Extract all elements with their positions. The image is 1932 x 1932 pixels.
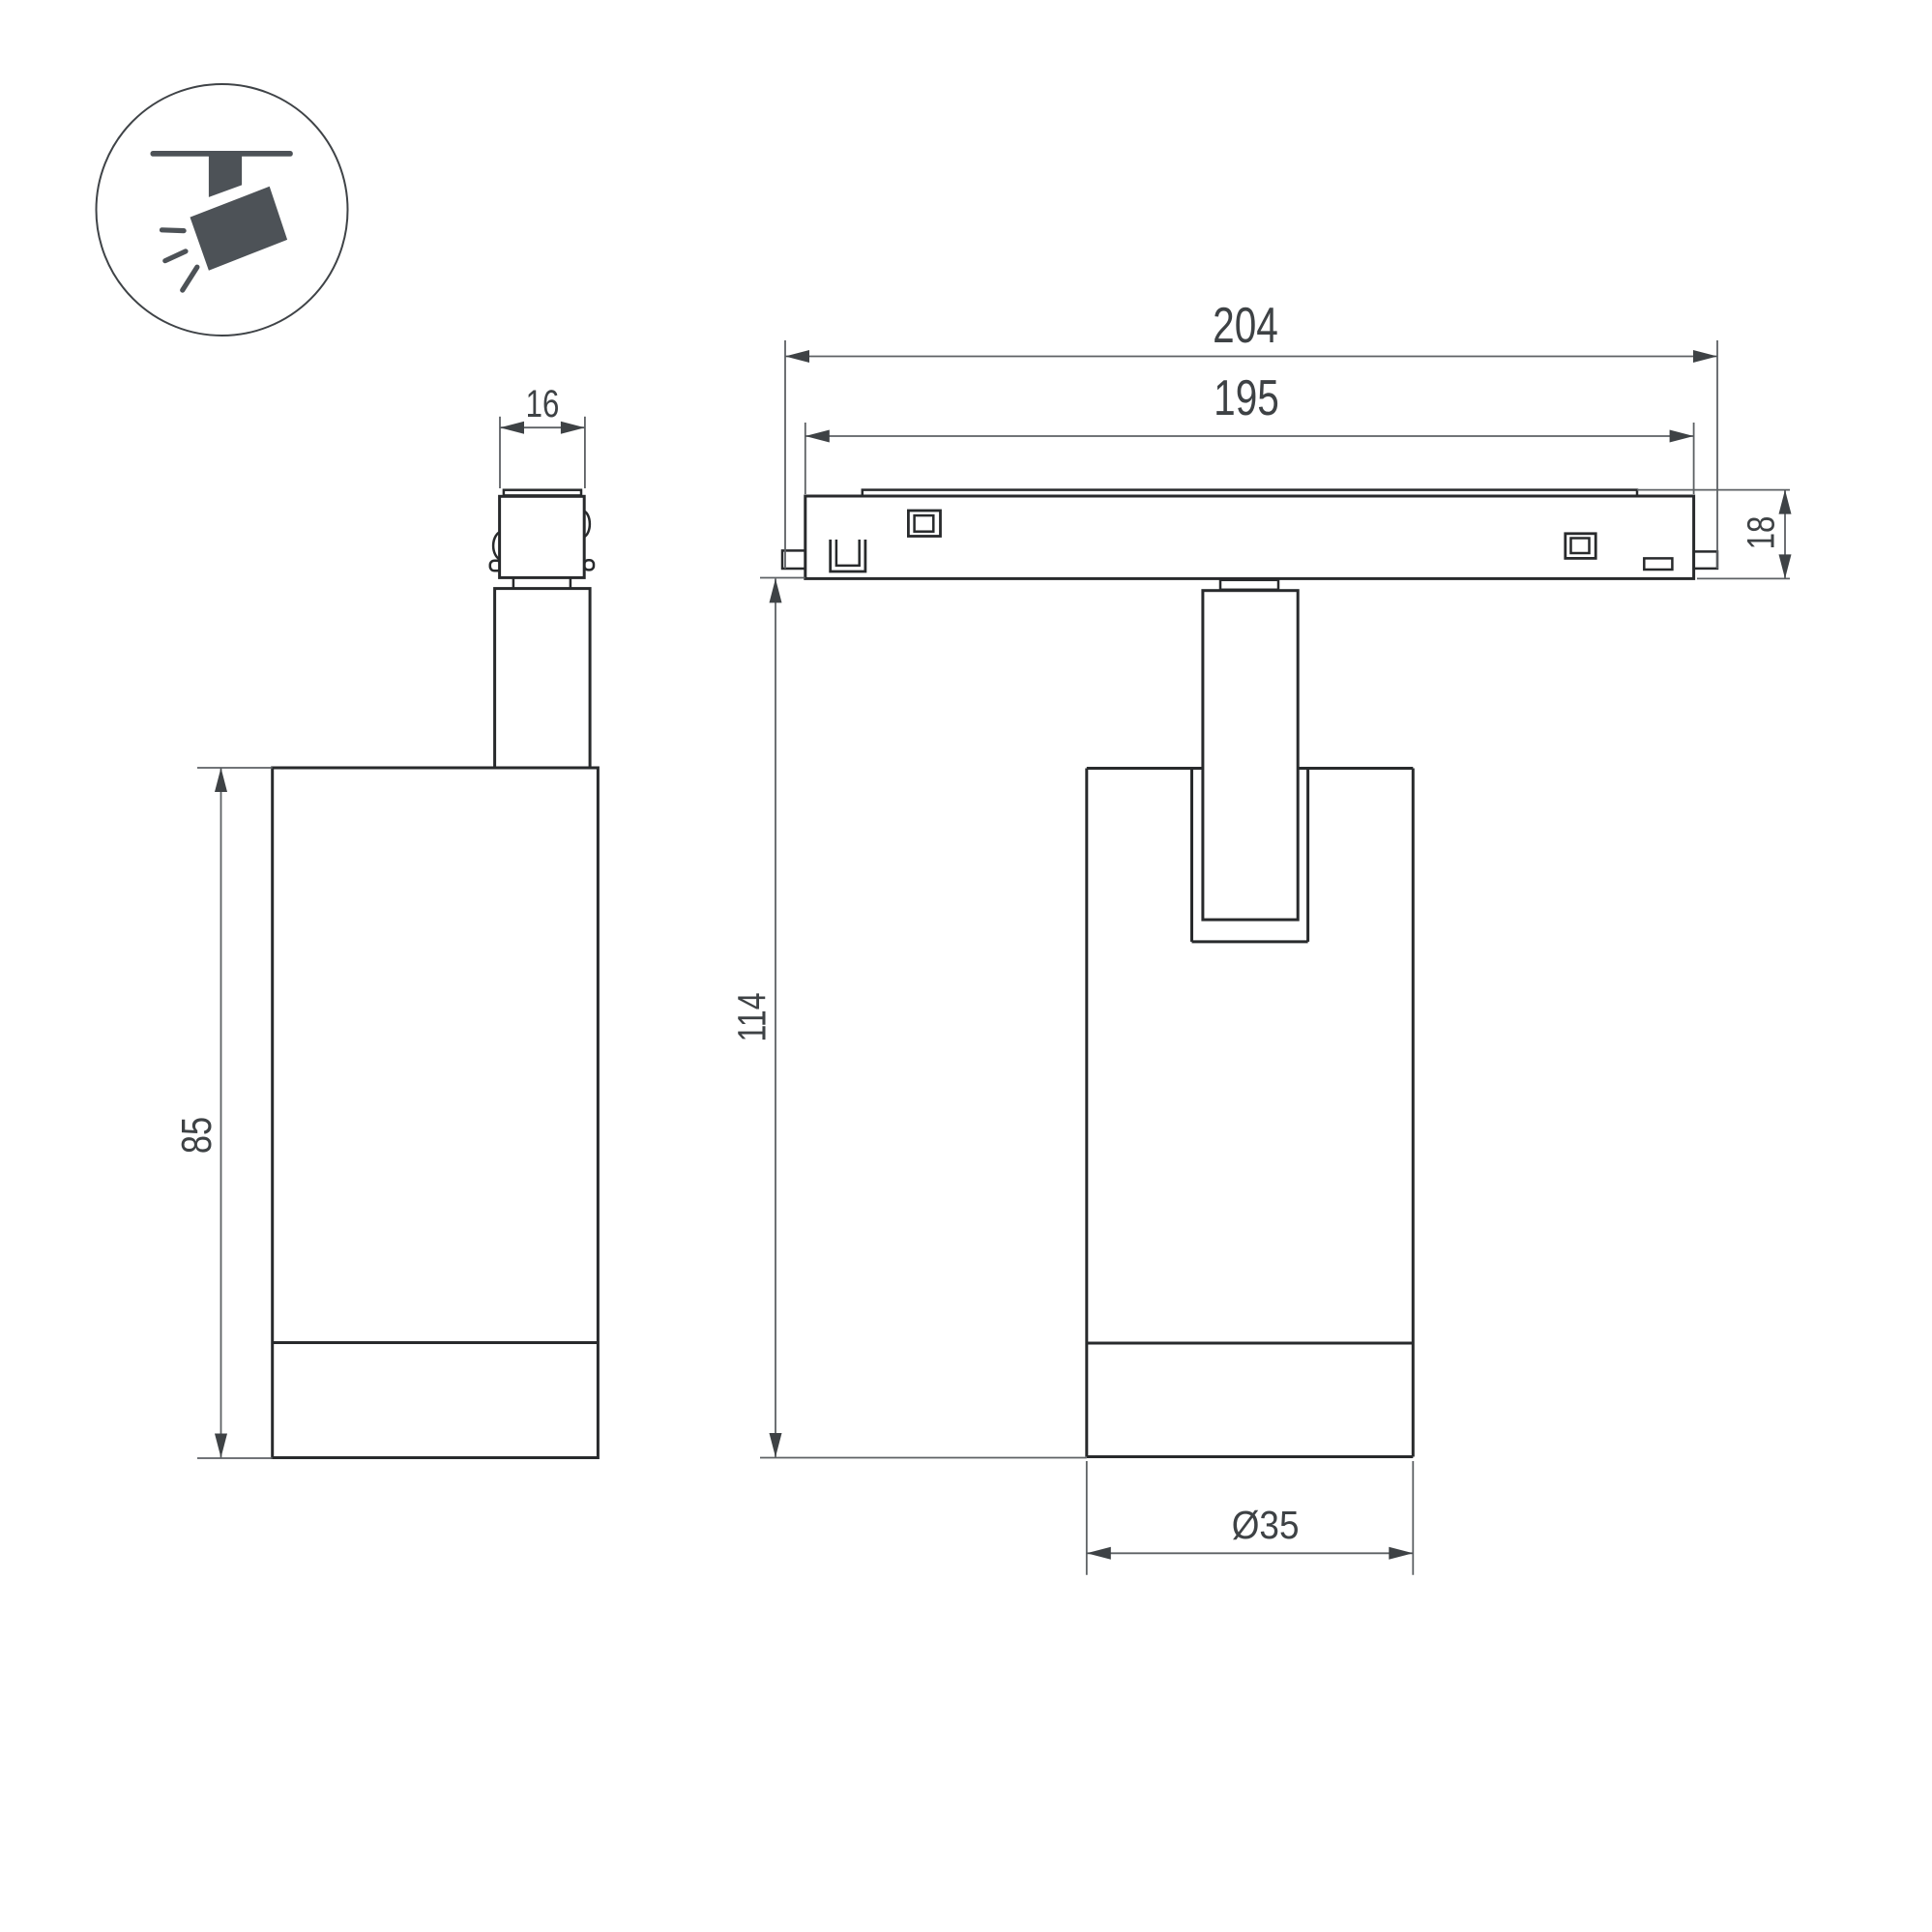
svg-text:195: 195 <box>1214 369 1279 425</box>
svg-text:85: 85 <box>173 1117 220 1154</box>
svg-text:16: 16 <box>526 382 560 425</box>
svg-text:Ø35: Ø35 <box>1232 1504 1300 1547</box>
svg-text:114: 114 <box>730 993 775 1042</box>
svg-text:18: 18 <box>1740 516 1783 550</box>
svg-text:204: 204 <box>1213 297 1278 353</box>
